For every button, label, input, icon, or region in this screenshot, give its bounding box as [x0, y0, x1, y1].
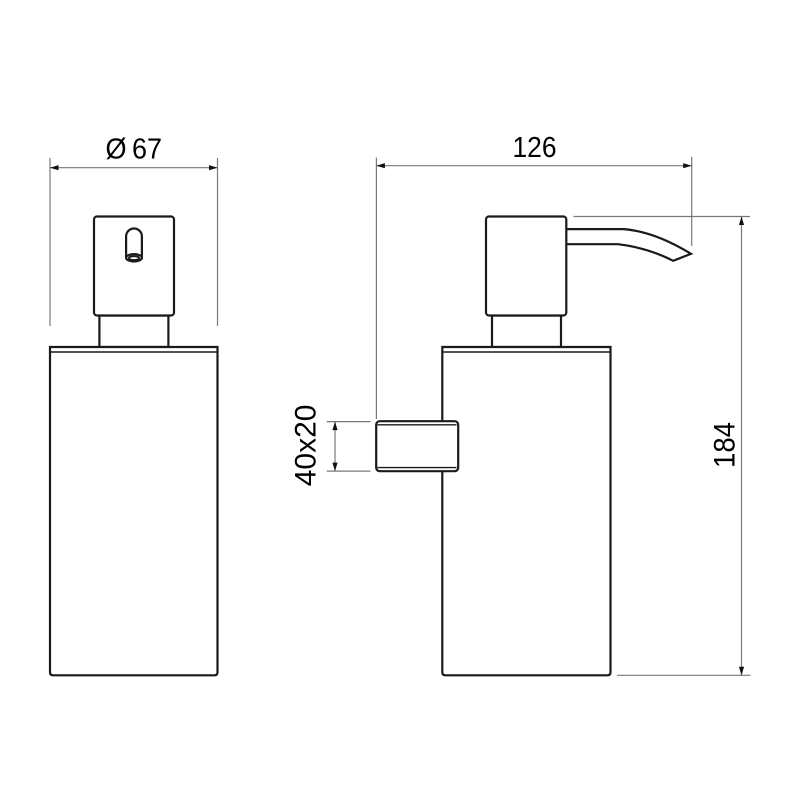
- svg-text:Ø 67: Ø 67: [106, 134, 163, 166]
- svg-text:126: 126: [513, 132, 557, 164]
- svg-text:40x20: 40x20: [289, 405, 322, 487]
- svg-text:184: 184: [708, 422, 741, 468]
